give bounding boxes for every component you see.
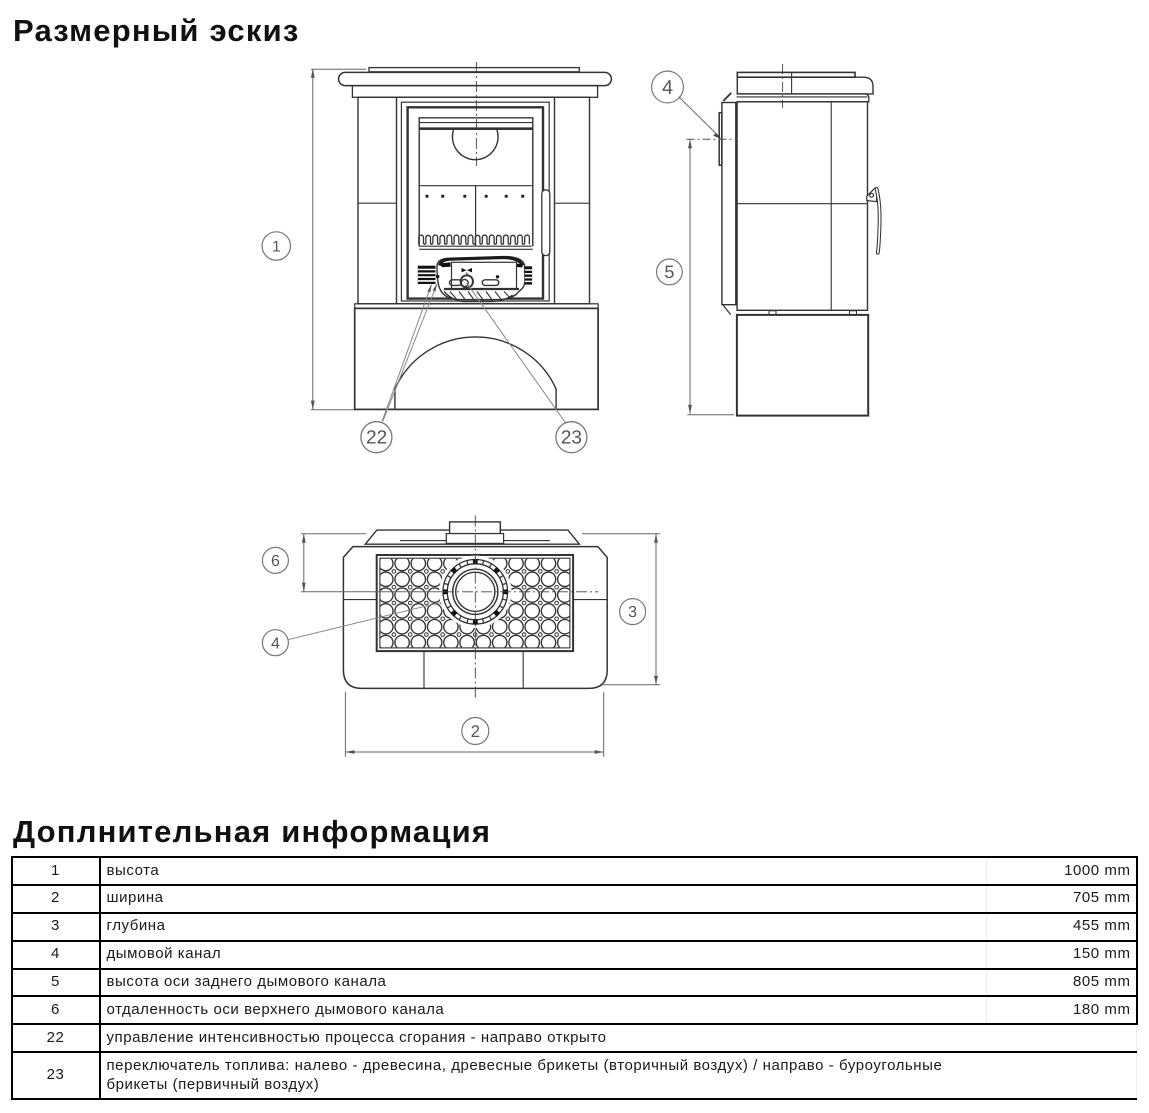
svg-text:6: 6 bbox=[271, 553, 280, 570]
svg-text:4: 4 bbox=[662, 77, 673, 99]
svg-text:22: 22 bbox=[366, 428, 387, 449]
svg-text:5: 5 bbox=[664, 262, 674, 282]
svg-text:23: 23 bbox=[561, 428, 582, 449]
svg-text:2: 2 bbox=[471, 722, 480, 741]
svg-text:1: 1 bbox=[272, 239, 281, 256]
svg-text:4: 4 bbox=[271, 635, 280, 652]
svg-text:3: 3 bbox=[628, 604, 637, 621]
